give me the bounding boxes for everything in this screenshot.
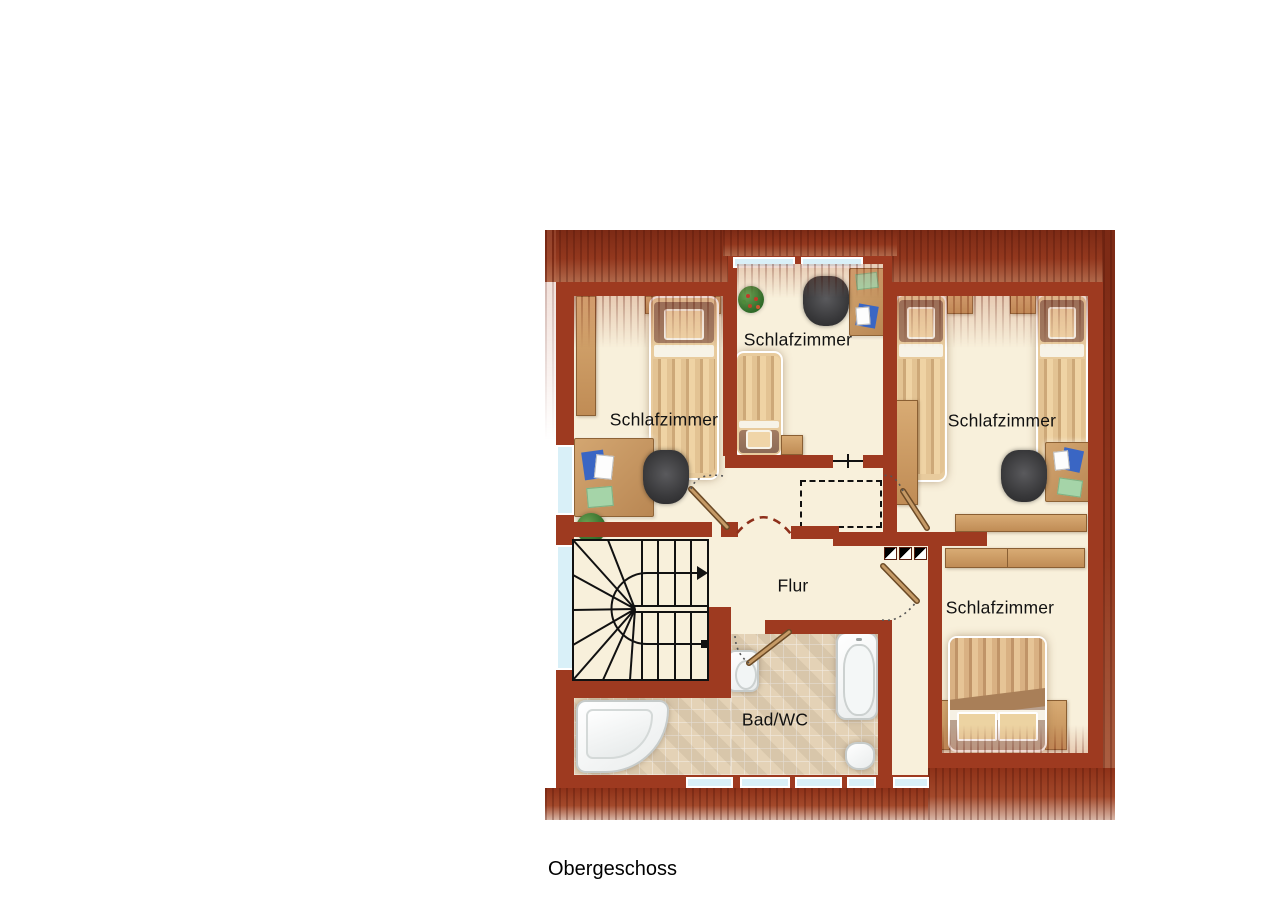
- floorplan-canvas: Schlafzimmer Schlafzimmer Schlafzimmer S…: [0, 0, 1280, 905]
- room-label-bad-wc: Bad/WC: [742, 710, 808, 731]
- passage-arch: [737, 517, 791, 534]
- door-icon: [882, 566, 917, 620]
- floor-title: Obergeschoss: [548, 858, 677, 881]
- room-label-flur: Flur: [778, 576, 809, 597]
- door-icon: [883, 475, 927, 528]
- room-label-schlafzimmer-top-left: Schlafzimmer: [610, 410, 718, 431]
- room-label-schlafzimmer-top-right: Schlafzimmer: [948, 411, 1056, 432]
- door-icon: [691, 475, 727, 527]
- stairs-and-doors-overlay: [545, 230, 1115, 820]
- attic-hatch-icon: [899, 547, 912, 560]
- room-label-schlafzimmer-top-middle: Schlafzimmer: [744, 330, 852, 351]
- floorplan-obergeschoss: Schlafzimmer Schlafzimmer Schlafzimmer S…: [545, 230, 1115, 820]
- interior-opening-symbol: [833, 454, 863, 468]
- stairs-start-marker: [701, 640, 709, 648]
- attic-hatch-icon: [914, 547, 927, 560]
- attic-hatch-icon: [884, 547, 897, 560]
- stairs-icon: [573, 540, 708, 680]
- room-label-schlafzimmer-bottom-right: Schlafzimmer: [946, 598, 1054, 619]
- door-icon: [735, 632, 789, 663]
